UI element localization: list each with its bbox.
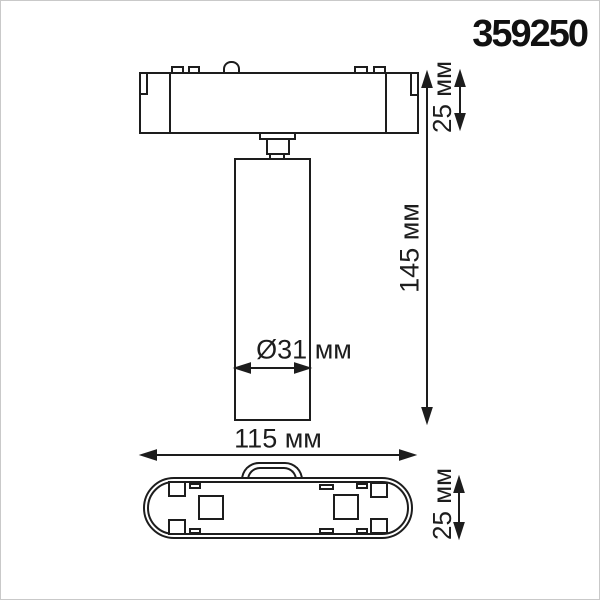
adapter-end-notch-left — [139, 72, 148, 95]
dim-label-width: 115 мм — [234, 426, 322, 453]
contact-pad — [168, 481, 186, 497]
adapter-endcap-divider-right — [385, 72, 387, 134]
contact-pad-small — [356, 528, 368, 534]
magnet-pad-right — [333, 494, 359, 520]
lamp-body-cylinder — [234, 158, 311, 421]
contact-pad — [370, 482, 388, 498]
dim-label-depth: 25 мм — [429, 468, 455, 540]
contact-pad — [370, 518, 388, 534]
adapter-end-notch-right — [410, 72, 419, 96]
product-code: 359250 — [472, 13, 587, 56]
contact-pad-small — [189, 528, 201, 534]
dim-label-diameter: Ø31 мм — [256, 337, 352, 364]
adapter-endcap-divider-left — [169, 72, 171, 134]
contact-pad-small — [356, 483, 368, 489]
contact-pad — [168, 519, 186, 535]
contact-pad-small — [319, 484, 334, 490]
dim-label-overall-height: 145 мм — [397, 203, 424, 293]
contact-pad-small — [189, 483, 201, 489]
track-adapter-bar — [139, 72, 419, 134]
dim-label-adapter-height: 25 мм — [429, 61, 455, 133]
magnet-pad-left — [198, 495, 224, 520]
contact-pad-small — [319, 528, 334, 534]
technical-drawing-canvas: 359250 25 мм 145 мм Ø31 мм 115 мм 25 мм — [0, 0, 600, 600]
